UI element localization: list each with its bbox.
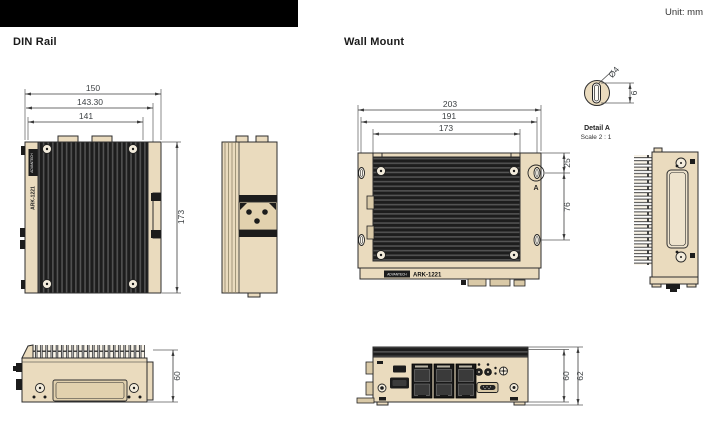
model-label-vertical: ARK-1221 [31, 186, 37, 210]
din-clip [151, 193, 161, 238]
wall-bracket-left [357, 362, 374, 403]
fin-comb-left [634, 155, 652, 265]
dim-body-height: 60 [561, 371, 571, 381]
dim-hole-span: 76 [562, 202, 572, 212]
dim-length: 6 [629, 90, 639, 95]
foot [377, 402, 388, 405]
dim-overall-height: 62 [575, 371, 585, 381]
brand-label: ADVANTECH [387, 273, 407, 277]
top-connector-bump [236, 136, 248, 142]
dim-width-outer: 150 [86, 83, 100, 93]
brand-label-vertical: ADVANTECH [30, 153, 34, 173]
top-connector-bump [58, 136, 78, 142]
detail-a-marker: A [533, 185, 538, 192]
fin-comb-top [33, 345, 145, 358]
heatsink-fins [38, 142, 148, 293]
dim-width-mid: 143.30 [77, 97, 103, 107]
din-mount-plate [239, 195, 277, 237]
serial-db9-port [477, 383, 498, 393]
din-rail-side-view [222, 136, 277, 297]
heatsink-fins [373, 157, 520, 261]
left-edge-connectors [20, 146, 25, 289]
dim-height: 173 [176, 210, 186, 224]
detail-a-scale: Scale 2 : 1 [581, 134, 612, 141]
bottom-bump [248, 293, 260, 297]
dimension-drawing: 150 143.30 141 173 ADVANTECH ARK-1 [0, 0, 711, 427]
power-button [378, 384, 386, 392]
side-base [650, 277, 698, 292]
expansion-cover [53, 380, 127, 401]
din-rail-bottom-view: 60 [13, 345, 182, 402]
wall-mount-bottom-view: 60 62 [357, 347, 585, 405]
detail-a-title: Detail A [584, 125, 610, 132]
top-connector-bump [92, 136, 112, 142]
foot [514, 402, 525, 405]
wall-mount-front-view: 203 191 173 A [358, 99, 572, 286]
dc-power-jack [500, 367, 508, 375]
din-rail-front-view: 150 143.30 141 173 ADVANTECH ARK-1 [20, 83, 186, 293]
model-label: ARK-1221 [413, 273, 442, 279]
dim-width-inner: 141 [79, 111, 93, 121]
din-clip-edge [147, 362, 153, 400]
left-wedge [22, 345, 33, 358]
dim-width-inner: 173 [439, 123, 453, 133]
dim-diameter: Ø4 [606, 64, 621, 79]
expansion-cover [667, 170, 688, 248]
top-connector-bump [256, 136, 268, 142]
fin-edge-strip [373, 347, 528, 357]
detail-a-slot [593, 83, 601, 103]
bottom-connectors [461, 279, 525, 286]
dim-hole-offset: 25 [562, 158, 572, 168]
page-canvas: Unit: mm DIN Rail Wall Mount [0, 0, 711, 427]
lan-usb-port-stacks [412, 364, 476, 398]
dim-width-outer: 203 [443, 99, 457, 109]
detail-a-view: Ø4 6 Detail A Scale 2 : 1 [581, 64, 639, 141]
wall-mount-side-view [634, 148, 698, 292]
dim-width-mid: 191 [442, 111, 456, 121]
dim-height: 60 [172, 371, 182, 381]
left-edge-connectors [13, 363, 22, 390]
